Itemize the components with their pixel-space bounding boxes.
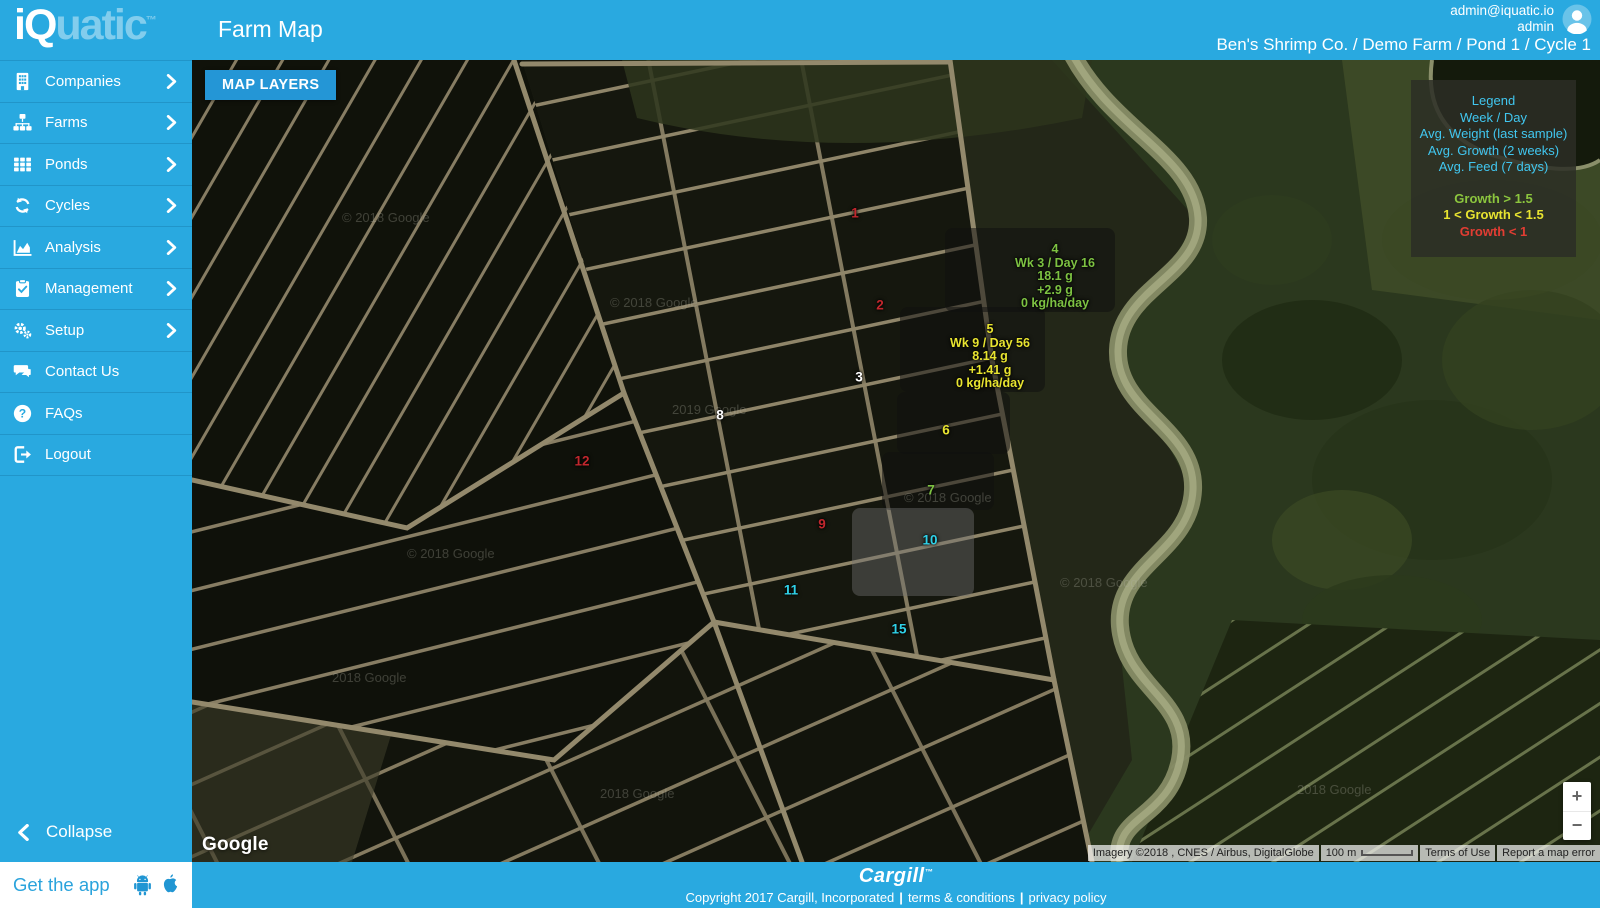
- pond-marker-3[interactable]: 3: [855, 370, 863, 385]
- chevron-right-icon: [164, 323, 179, 338]
- footer: Cargill™ Copyright 2017 Cargill, Incorpo…: [192, 862, 1600, 908]
- scale-bar: [1361, 850, 1413, 856]
- chart-icon: [13, 238, 34, 257]
- map-attribution: Imagery ©2018 , CNES / Airbus, DigitalGl…: [1088, 845, 1600, 861]
- grid-icon: [13, 155, 34, 174]
- breadcrumb[interactable]: Ben's Shrimp Co. / Demo Farm / Pond 1 / …: [1216, 35, 1591, 55]
- google-watermark: 2018 Google: [332, 670, 406, 685]
- copyright-text: Copyright 2017 Cargill, Incorporated: [685, 890, 894, 905]
- sidebar-item-label: Ponds: [45, 156, 153, 173]
- user-name: admin: [1450, 19, 1554, 35]
- sidebar-item-cycles[interactable]: Cycles: [0, 186, 192, 228]
- legend-info-line: Avg. Weight (last sample): [1411, 126, 1576, 143]
- pond-marker-7[interactable]: 7: [927, 483, 935, 498]
- chevron-right-icon: [164, 240, 179, 255]
- get-the-app-link[interactable]: Get the app: [13, 874, 125, 896]
- chevron-left-icon: [15, 824, 36, 841]
- collapse-label: Collapse: [46, 822, 112, 842]
- logout-icon: [13, 445, 34, 464]
- refresh-icon: [13, 196, 34, 215]
- pond-marker-10[interactable]: 10: [922, 533, 937, 548]
- pond-marker-6[interactable]: 6: [942, 423, 950, 438]
- pond-marker-2[interactable]: 2: [876, 298, 884, 313]
- legend-info-line: Avg. Feed (7 days): [1411, 159, 1576, 176]
- user-block[interactable]: admin@iquatic.io admin: [1450, 3, 1592, 35]
- google-watermark: © 2018 Google: [342, 210, 430, 225]
- sitemap-icon: [13, 113, 34, 132]
- zoom-out-button[interactable]: −: [1563, 811, 1591, 841]
- report-map-error-link[interactable]: Report a map error: [1497, 845, 1600, 861]
- google-watermark: © 2018 Google: [610, 295, 698, 310]
- iquatic-logo[interactable]: iQuatic™: [14, 1, 157, 50]
- sidebar-nav: CompaniesFarmsPondsCyclesAnalysisManagem…: [0, 60, 192, 862]
- copyright-line: Copyright 2017 Cargill, Incorporated|ter…: [192, 890, 1600, 905]
- sidebar-item-contact-us[interactable]: Contact Us: [0, 352, 192, 394]
- farm-map-canvas[interactable]: © 2018 Google© 2018 Google2019 Google© 2…: [192, 60, 1600, 862]
- pond-detail-5[interactable]: 5Wk 9 / Day 568.14 g+1.41 g0 kg/ha/day: [950, 323, 1030, 391]
- building-icon: [13, 72, 34, 91]
- chevron-right-icon: [164, 115, 179, 130]
- svg-text:?: ?: [19, 406, 26, 420]
- get-the-app-bar: Get the app: [0, 862, 192, 908]
- sidebar-item-label: Logout: [45, 446, 179, 463]
- google-watermark: © 2018 Google: [407, 546, 495, 561]
- chevron-right-icon: [164, 198, 179, 213]
- sidebar-item-setup[interactable]: Setup: [0, 310, 192, 352]
- google-watermark: 2018 Google: [1297, 782, 1371, 797]
- map-overlays: © 2018 Google© 2018 Google2019 Google© 2…: [192, 60, 1600, 862]
- google-watermark: © 2018 Google: [1060, 575, 1148, 590]
- pond-marker-12[interactable]: 12: [574, 454, 589, 469]
- zoom-in-button[interactable]: +: [1563, 782, 1591, 811]
- pond-marker-15[interactable]: 15: [891, 622, 906, 637]
- imagery-attribution: Imagery ©2018 , CNES / Airbus, DigitalGl…: [1088, 845, 1319, 861]
- sidebar-item-label: Setup: [45, 322, 153, 339]
- sidebar-item-faqs[interactable]: ?FAQs: [0, 393, 192, 435]
- legend-threshold: Growth < 1: [1411, 224, 1576, 241]
- clipboard-icon: [13, 279, 34, 298]
- google-watermark: © 2018 Google: [904, 490, 992, 505]
- legend-info-line: Avg. Growth (2 weeks): [1411, 143, 1576, 160]
- comments-icon: [13, 362, 34, 381]
- map-zoom-control: + −: [1563, 782, 1591, 840]
- map-scale: 100 m: [1321, 845, 1419, 861]
- privacy-policy-link[interactable]: privacy policy: [1029, 890, 1107, 905]
- sidebar-item-label: Farms: [45, 114, 153, 131]
- android-icon[interactable]: [132, 874, 153, 896]
- cargill-logo: Cargill™: [192, 865, 1600, 888]
- legend-threshold: Growth > 1.5: [1411, 191, 1576, 208]
- pond-marker-9[interactable]: 9: [818, 517, 826, 532]
- sidebar-item-label: FAQs: [45, 405, 179, 422]
- terms-conditions-link[interactable]: terms & conditions: [908, 890, 1015, 905]
- app-header: iQuatic™ Farm Map admin@iquatic.io admin…: [0, 0, 1600, 60]
- chevron-right-icon: [164, 157, 179, 172]
- sidebar-item-label: Companies: [45, 73, 153, 90]
- sidebar-item-ponds[interactable]: Ponds: [0, 144, 192, 186]
- sidebar-item-label: Analysis: [45, 239, 153, 256]
- google-watermark: 2019 Google: [672, 402, 746, 417]
- legend-threshold: 1 < Growth < 1.5: [1411, 207, 1576, 224]
- sidebar-item-label: Cycles: [45, 197, 153, 214]
- pond-marker-11[interactable]: 11: [784, 583, 798, 598]
- google-watermark: 2018 Google: [600, 786, 674, 801]
- legend-info-line: Week / Day: [1411, 110, 1576, 127]
- pond-highlight-6[interactable]: [897, 392, 1010, 454]
- collapse-sidebar-button[interactable]: Collapse: [0, 812, 192, 852]
- sidebar-item-analysis[interactable]: Analysis: [0, 227, 192, 269]
- sidebar-item-label: Management: [45, 280, 153, 297]
- sidebar-item-farms[interactable]: Farms: [0, 103, 192, 145]
- legend-title: Legend: [1411, 93, 1576, 110]
- google-logo[interactable]: Google: [202, 834, 269, 856]
- question-icon: ?: [13, 404, 34, 423]
- sidebar-item-companies[interactable]: Companies: [0, 61, 192, 103]
- apple-icon[interactable]: [160, 874, 179, 896]
- pond-marker-8[interactable]: 8: [716, 408, 724, 423]
- map-layers-button[interactable]: MAP LAYERS: [205, 70, 336, 100]
- scale-label: 100 m: [1326, 847, 1357, 859]
- gears-icon: [13, 321, 34, 340]
- chevron-right-icon: [164, 74, 179, 89]
- sidebar-item-label: Contact Us: [45, 363, 179, 380]
- sidebar-item-logout[interactable]: Logout: [0, 435, 192, 477]
- pond-highlight-10[interactable]: [852, 508, 974, 596]
- pond-marker-1[interactable]: 1: [851, 206, 859, 221]
- page-title: Farm Map: [218, 16, 323, 43]
- terms-of-use-link[interactable]: Terms of Use: [1420, 845, 1495, 861]
- user-email: admin@iquatic.io: [1450, 3, 1554, 19]
- sidebar-item-management[interactable]: Management: [0, 269, 192, 311]
- chevron-right-icon: [164, 281, 179, 296]
- map-legend: Legend Week / DayAvg. Weight (last sampl…: [1411, 80, 1576, 257]
- pond-detail-4[interactable]: 4Wk 3 / Day 1618.1 g+2.9 g0 kg/ha/day: [1015, 243, 1095, 311]
- user-avatar-icon[interactable]: [1562, 4, 1592, 34]
